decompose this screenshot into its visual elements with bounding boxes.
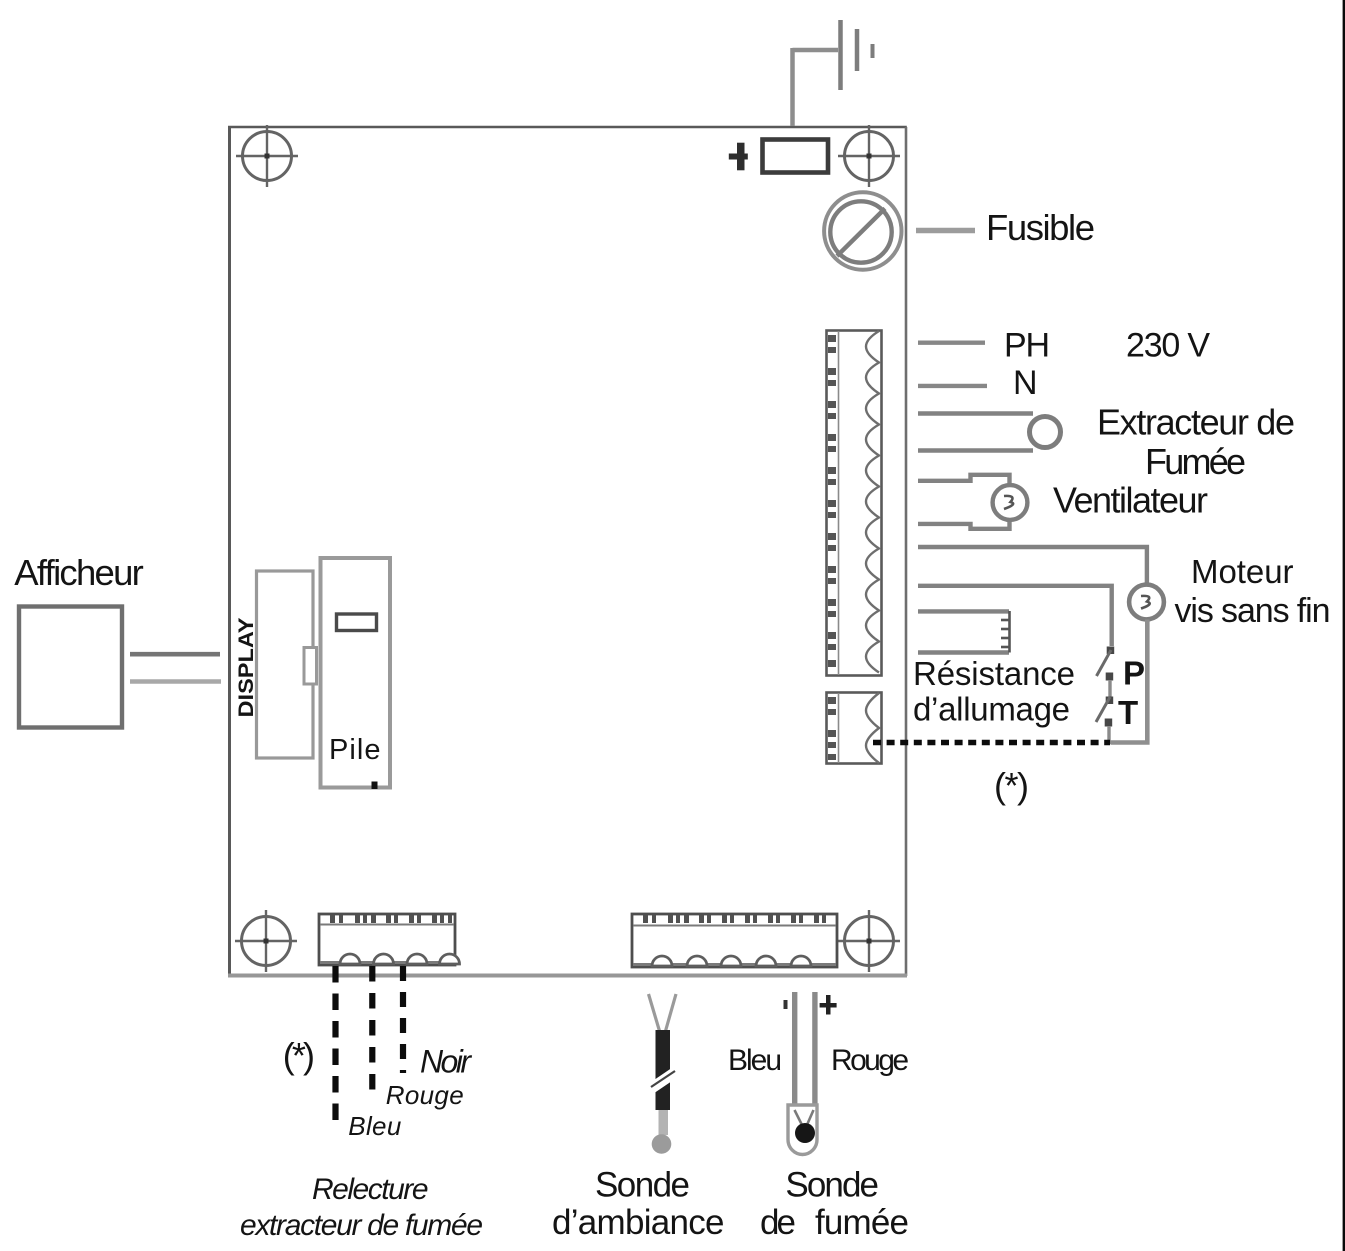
svg-text:Bleu: Bleu [348,1111,401,1141]
svg-text:vis sans fin: vis sans fin [1175,592,1331,630]
svg-text:230 V: 230 V [1126,327,1210,365]
svg-text:Bleu: Bleu [728,1044,782,1077]
svg-text:de: de [760,1203,796,1242]
svg-text:Moteur: Moteur [1191,553,1294,590]
svg-text:Fusible: Fusible [986,207,1095,248]
svg-text:d’allumage: d’allumage [913,691,1070,728]
svg-text:PH: PH [1004,327,1050,365]
svg-text:(*): (*) [994,765,1029,806]
svg-text:Afficheur: Afficheur [14,552,144,593]
svg-text:P: P [1123,655,1145,692]
svg-text:Ventilateur: Ventilateur [1053,480,1208,521]
svg-text:Rouge: Rouge [831,1044,909,1077]
svg-text:Rouge: Rouge [386,1080,464,1110]
svg-text:Pile: Pile [329,734,381,766]
svg-text:extracteur de fumée: extracteur de fumée [240,1209,483,1242]
svg-text:N: N [1013,364,1038,402]
svg-text:Sonde: Sonde [785,1166,879,1205]
svg-text:d’ambiance: d’ambiance [552,1203,725,1242]
svg-text:Extracteur de: Extracteur de [1097,402,1295,443]
svg-text:Fumée: Fumée [1145,441,1246,482]
svg-text:DISPLAY: DISPLAY [235,618,258,718]
svg-text:T: T [1118,694,1138,731]
svg-text:Noir: Noir [420,1044,472,1080]
svg-text:(*): (*) [283,1035,315,1076]
svg-text:Résistance: Résistance [913,655,1075,692]
svg-text:Relecture: Relecture [312,1173,429,1206]
svg-text:Sonde: Sonde [595,1166,690,1205]
svg-text:fumée: fumée [815,1203,909,1242]
